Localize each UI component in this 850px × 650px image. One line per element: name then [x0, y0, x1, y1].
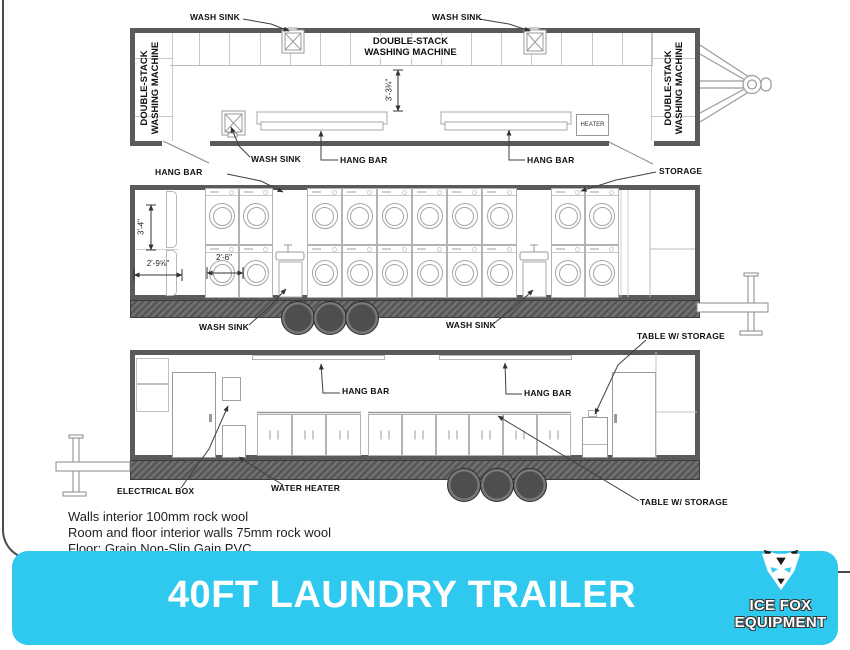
front-base-rail	[130, 300, 700, 318]
rear-hang-bar-label-center: HANG BAR	[524, 388, 571, 398]
title-banner: 40FT LAUNDRY TRAILER ICE FOX EQUIPMENT	[12, 551, 838, 645]
jack-stand	[697, 273, 768, 335]
porthole-door	[209, 203, 235, 229]
plan-washer-cell	[291, 33, 321, 65]
front-depth-dimension: 2'-9⅝"	[132, 259, 184, 268]
spec-note-line: Room and floor interior walls 75mm rock …	[68, 525, 331, 541]
table-with-storage	[582, 417, 608, 458]
heater-box: HEATER	[576, 114, 609, 136]
hang-bar-rod	[439, 355, 572, 360]
water-heater-label: WATER HEATER	[271, 483, 340, 493]
plan-left-unit-label: DOUBLE-STACK WASHING MACHINE	[139, 36, 161, 140]
washer-dryer-unit	[377, 245, 412, 298]
control-panel	[206, 189, 238, 196]
front-end-door-leaf	[166, 191, 177, 248]
rear-wheel	[480, 468, 514, 502]
table-top-item	[588, 410, 597, 417]
door-handle	[209, 414, 212, 422]
spec-note-line: Walls interior 100mm rock wool	[68, 509, 331, 525]
plan-washer-cell	[502, 33, 532, 65]
porthole-door	[452, 260, 478, 286]
plan-washer-cell	[562, 33, 592, 65]
plan-door-opening-left	[162, 139, 210, 147]
washer-dryer-unit	[239, 188, 273, 245]
porthole-door	[417, 260, 443, 286]
control-panel	[240, 246, 272, 253]
plan-center-unit-label: DOUBLE-STACK WASHING MACHINE	[353, 36, 468, 58]
control-panel	[343, 246, 376, 253]
base-cabinet-group	[368, 414, 571, 456]
washer-dryer-unit	[551, 245, 585, 298]
hang-bar-rod	[252, 355, 385, 360]
control-panel	[413, 189, 446, 196]
front-wash-sink-label-center: WASH SINK	[446, 320, 496, 330]
porthole-door	[312, 203, 338, 229]
control-panel	[586, 189, 618, 196]
washer-dryer-unit	[482, 245, 517, 298]
plan-washer-cell	[593, 33, 623, 65]
control-panel	[378, 246, 411, 253]
control-panel	[240, 189, 272, 196]
rear-upper-cabinet	[136, 358, 169, 384]
rear-wheel	[447, 468, 481, 502]
washer-dryer-unit	[447, 245, 482, 298]
plan-washer-cell	[623, 33, 653, 65]
washer-dryer-unit	[342, 188, 377, 245]
plan-right-unit-label: DOUBLE-STACK WASHING MACHINE	[663, 36, 685, 140]
front-wheel	[281, 301, 315, 335]
washer-dryer-unit	[585, 245, 619, 298]
control-panel	[586, 246, 618, 253]
front-machine-width-dimension: 2'-6"	[202, 253, 246, 262]
ice-fox-logo: ICE FOX EQUIPMENT	[733, 548, 828, 631]
porthole-door	[347, 203, 373, 229]
cabinet-door	[292, 414, 327, 456]
logo-line1: ICE FOX	[733, 597, 828, 614]
front-height-dimension: 3'-4"	[137, 219, 146, 235]
washer-dryer-unit	[377, 188, 412, 245]
front-hang-bar-label: HANG BAR	[155, 167, 202, 177]
door-handle	[614, 414, 617, 423]
washer-dryer-unit	[205, 188, 239, 245]
sheet-border-left	[2, 0, 42, 560]
porthole-door	[382, 203, 408, 229]
control-panel	[206, 246, 238, 253]
plan-washer-cell	[261, 33, 291, 65]
washer-dryer-unit	[307, 188, 342, 245]
plan-washer-cell	[200, 33, 230, 65]
porthole-door	[209, 260, 235, 286]
porthole-door	[487, 260, 513, 286]
cabinet-door	[503, 414, 537, 456]
porthole-door	[417, 203, 443, 229]
porthole-door	[452, 203, 478, 229]
control-panel	[308, 246, 341, 253]
plan-aisle-dimension: 3'-3¾"	[385, 79, 394, 102]
cabinet-door	[402, 414, 436, 456]
plan-hang-bar-label-right: HANG BAR	[527, 155, 574, 165]
rear-base-rail	[130, 460, 700, 480]
control-panel	[552, 246, 584, 253]
rear-door	[612, 372, 656, 458]
porthole-door	[487, 203, 513, 229]
trailer-hitch	[700, 45, 771, 122]
porthole-door	[589, 260, 615, 286]
plan-wash-sink-label-top-right: WASH SINK	[432, 12, 482, 22]
cabinet-door	[469, 414, 503, 456]
front-wash-sink-label-left: WASH SINK	[199, 322, 249, 332]
table-storage-label-top: TABLE W/ STORAGE	[637, 331, 725, 341]
porthole-door	[555, 260, 581, 286]
washer-dryer-bank	[307, 188, 517, 298]
porthole-door	[555, 203, 581, 229]
table-shelf-line	[583, 444, 607, 445]
cabinet-door	[368, 414, 402, 456]
electrical-box	[222, 377, 241, 401]
washer-dryer-unit	[585, 188, 619, 245]
washer-dryer-unit	[342, 245, 377, 298]
control-panel	[308, 189, 341, 196]
washer-dryer-unit	[447, 188, 482, 245]
control-panel	[378, 189, 411, 196]
plan-door-opening-right	[609, 139, 654, 147]
plan-washer-cell	[472, 33, 502, 65]
plan-hang-bar-label-left: HANG BAR	[340, 155, 387, 165]
porthole-door	[243, 203, 269, 229]
heater-label: HEATER	[581, 122, 605, 128]
washer-dryer-bank	[551, 188, 619, 298]
page-title: 40FT LAUNDRY TRAILER	[62, 574, 742, 617]
washer-dryer-bank	[205, 188, 273, 298]
control-panel	[448, 246, 481, 253]
plan-wash-sink-label-top-left: WASH SINK	[190, 12, 240, 22]
porthole-door	[312, 260, 338, 286]
cabinet-door	[436, 414, 470, 456]
washer-dryer-unit	[482, 188, 517, 245]
control-panel	[413, 246, 446, 253]
porthole-door	[589, 203, 615, 229]
spec-notes: Walls interior 100mm rock wool Room and …	[68, 509, 331, 557]
plan-washer-cell	[230, 33, 260, 65]
base-cabinet-group	[257, 414, 361, 456]
control-panel	[483, 246, 516, 253]
laundry-trailer-drawing-sheet: HEATER DOUBLE-STACK WASHING MACHINE DOUB…	[0, 0, 850, 650]
rear-upper-cabinet	[136, 384, 169, 412]
control-panel	[448, 189, 481, 196]
fox-icon	[749, 548, 813, 592]
sheet-border-right	[837, 571, 850, 573]
cabinet-door	[257, 414, 292, 456]
rear-hang-bar-label-left: HANG BAR	[342, 386, 389, 396]
plan-washer-cell	[532, 33, 562, 65]
control-panel	[343, 189, 376, 196]
table-storage-label-bottom: TABLE W/ STORAGE	[640, 497, 728, 507]
porthole-door	[243, 260, 269, 286]
cabinet-door	[326, 414, 361, 456]
plan-washer-cell	[170, 33, 200, 65]
water-heater	[222, 425, 246, 458]
electrical-box-label: ELECTRICAL BOX	[117, 486, 194, 496]
washer-dryer-unit	[412, 188, 447, 245]
washer-dryer-unit	[307, 245, 342, 298]
rear-wheel	[513, 468, 547, 502]
front-end-door-leaf	[166, 250, 177, 296]
front-storage-label: STORAGE	[659, 166, 702, 176]
front-wheel	[313, 301, 347, 335]
plan-washer-cell	[321, 33, 351, 65]
porthole-door	[347, 260, 373, 286]
cabinet-door	[537, 414, 571, 456]
control-panel	[552, 189, 584, 196]
control-panel	[483, 189, 516, 196]
porthole-door	[382, 260, 408, 286]
plan-wash-sink-label-bottom: WASH SINK	[251, 154, 301, 164]
washer-dryer-unit	[412, 245, 447, 298]
front-wheel	[345, 301, 379, 335]
washer-dryer-unit	[551, 188, 585, 245]
logo-line2: EQUIPMENT	[733, 614, 828, 631]
